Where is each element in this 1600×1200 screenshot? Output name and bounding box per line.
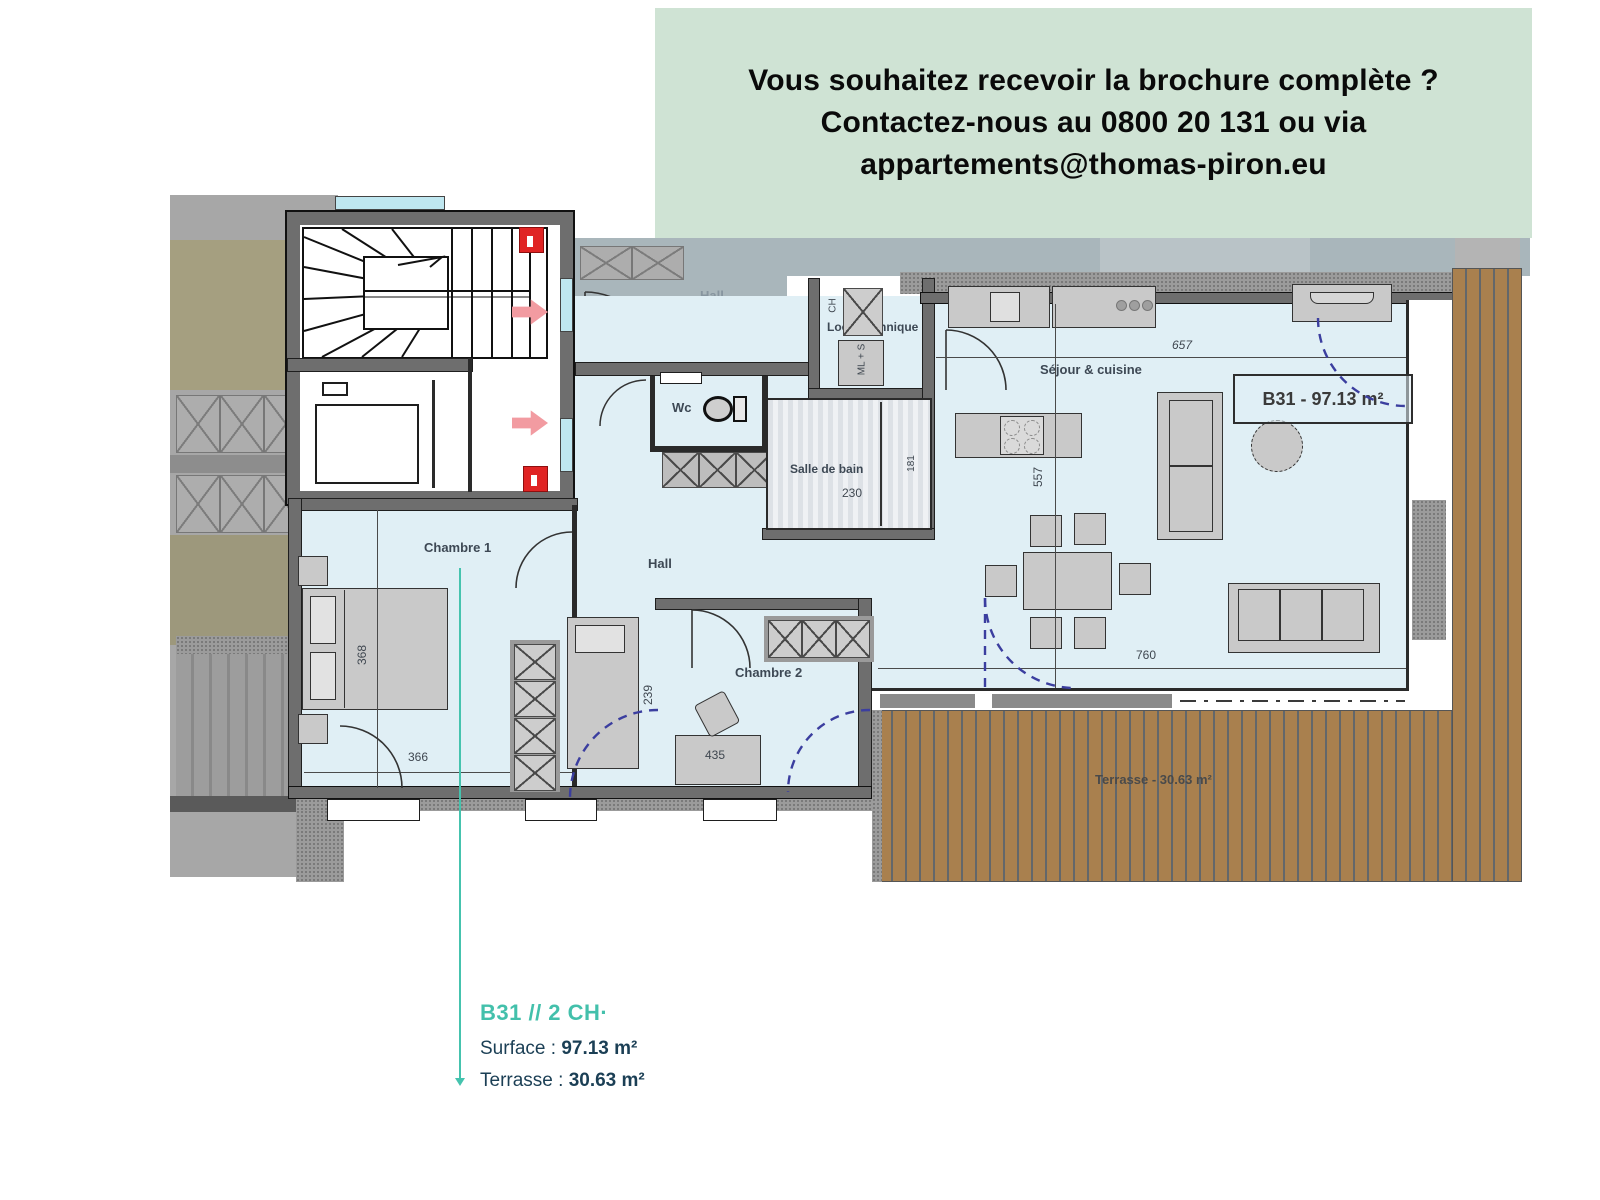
door-arc-chambre2 xyxy=(692,610,750,668)
elevator-door-line xyxy=(432,380,435,488)
elevator-counterweight xyxy=(322,382,348,396)
surface-line: Surface : 97.13 m² xyxy=(480,1038,637,1060)
common-hall-wardrobe xyxy=(580,246,632,280)
banner-line-3: appartements@thomas-piron.eu xyxy=(860,148,1327,182)
terrace-deck xyxy=(878,710,1506,882)
neighbor-olive-block-2 xyxy=(170,535,302,645)
room-label-sdb: Salle de bain xyxy=(790,462,863,476)
nightstand xyxy=(298,714,328,744)
window xyxy=(560,278,573,332)
kitchen-counter xyxy=(1052,286,1156,328)
hob-knob xyxy=(1142,300,1153,311)
door-arc-wc xyxy=(600,380,646,426)
neighbor-terrace-deck xyxy=(176,654,302,796)
chambre1-left-wall xyxy=(288,498,302,790)
dim-label-181: 181 xyxy=(906,455,917,472)
neighbor-wardrobe xyxy=(220,395,264,453)
common-hall-wardrobe xyxy=(632,246,684,280)
hob-burner xyxy=(1024,438,1040,454)
terrace-left-wall xyxy=(872,710,882,882)
bedroom-window xyxy=(327,799,420,821)
surface-label: Surface : xyxy=(480,1038,556,1059)
shower-screen xyxy=(880,402,882,526)
contact-banner: Vous souhaitez recevoir la brochure comp… xyxy=(655,8,1532,238)
neighbor-wardrobe xyxy=(176,395,220,453)
neighbor-terrace-edge xyxy=(176,636,302,654)
stair-elevator-wall xyxy=(287,358,473,372)
dining-chair xyxy=(1030,515,1062,547)
hall-storage xyxy=(699,452,736,488)
sejour-bottom-line xyxy=(872,688,1409,691)
chambre2-top-wall xyxy=(655,598,870,610)
surface-value: 97.13 m² xyxy=(561,1038,637,1059)
dim-label-657: 657 xyxy=(1172,338,1192,352)
coffee-table xyxy=(1251,420,1303,472)
dim-label-368: 368 xyxy=(355,645,369,665)
bed-pillow xyxy=(575,625,625,653)
window-door-arc xyxy=(985,598,1075,688)
terrace-value: 30.63 m² xyxy=(569,1070,645,1091)
hall-storage xyxy=(662,452,699,488)
sofa-cushion xyxy=(1322,589,1364,641)
unit-title: B31 // 2 CH· xyxy=(480,1000,608,1026)
neighbor-wardrobe xyxy=(176,475,220,533)
sofa-cushion xyxy=(1238,589,1280,641)
wardrobe xyxy=(836,620,870,658)
bed-fold-line xyxy=(344,590,345,708)
terrace-line: Terrasse : 30.63 m² xyxy=(480,1070,645,1092)
sejour-bottom-sill xyxy=(880,694,975,708)
banner-line-2: Contactez-nous au 0800 20 131 ou via xyxy=(821,106,1367,140)
wc-left-wall xyxy=(650,376,655,450)
fire-extinguisher-icon xyxy=(519,227,544,253)
dining-chair xyxy=(1074,617,1106,649)
terrace-label: Terrasse : xyxy=(480,1070,563,1091)
leader-line xyxy=(459,568,461,1080)
door-arc-sejour xyxy=(946,330,1006,390)
window xyxy=(335,196,445,210)
bedroom-window xyxy=(703,799,777,821)
wardrobe xyxy=(802,620,836,658)
toilet-icon xyxy=(703,396,733,422)
wardrobe xyxy=(768,620,802,658)
toilet-tank-icon xyxy=(733,396,747,422)
sofa-cushion xyxy=(1280,589,1322,641)
wardrobe xyxy=(514,718,556,754)
sejour-bottom-sill xyxy=(992,694,1172,708)
dim-label-435: 435 xyxy=(705,748,725,762)
elevator-cab xyxy=(315,404,419,484)
elevator-wall xyxy=(468,358,472,492)
dining-chair xyxy=(1074,513,1106,545)
bed-pillow xyxy=(310,652,336,700)
sejour-right-pillar xyxy=(1412,500,1446,640)
kitchen-sink xyxy=(990,292,1020,322)
dim-label-230: 230 xyxy=(842,486,862,500)
door-arc-chambre1-entry xyxy=(340,726,402,788)
boiler-unit xyxy=(843,288,883,336)
dim-label-557: 557 xyxy=(1031,467,1045,487)
chambre1-top-wall xyxy=(288,498,578,511)
window xyxy=(560,418,573,472)
wardrobe xyxy=(514,681,556,717)
nightstand xyxy=(298,556,328,586)
room-label-hall: Hall xyxy=(648,556,672,571)
page: Hall xyxy=(0,0,1600,1200)
dim-label-239: 239 xyxy=(641,685,655,705)
room-label-chambre1: Chambre 1 xyxy=(424,540,491,555)
door-arc-chambre1 xyxy=(516,532,572,588)
wc-window xyxy=(660,372,702,384)
leader-line-arrowhead xyxy=(455,1078,465,1086)
local-left-wall xyxy=(808,278,820,400)
staircase xyxy=(302,227,548,359)
room-label-terrasse: Terrasse - 30.63 m² xyxy=(1095,772,1212,787)
window-door-arc xyxy=(1318,318,1406,406)
window-door-arc xyxy=(788,710,870,792)
appliance-label-ch: CH xyxy=(828,298,839,312)
fire-extinguisher-icon xyxy=(523,466,548,492)
hob-knob xyxy=(1129,300,1140,311)
tv-icon xyxy=(1310,292,1374,304)
bed-pillow xyxy=(310,596,336,644)
room-label-wc: Wc xyxy=(672,400,692,415)
dim-line-760 xyxy=(878,668,1406,669)
hob-knob xyxy=(1116,300,1127,311)
chaise-cushion xyxy=(1169,400,1213,466)
upper-common-block xyxy=(1100,238,1310,272)
hob-burner xyxy=(1004,420,1020,436)
hob-burner xyxy=(1004,438,1020,454)
dining-chair xyxy=(1119,563,1151,595)
upper-common-block xyxy=(1455,238,1520,268)
hob-burner xyxy=(1024,420,1040,436)
wardrobe xyxy=(514,644,556,680)
sejour-bottom-dashline xyxy=(1180,700,1405,702)
window-door-arc xyxy=(570,710,658,798)
bedroom-window xyxy=(525,799,597,821)
chaise-cushion xyxy=(1169,466,1213,532)
banner-line-1: Vous souhaitez recevoir la brochure comp… xyxy=(748,64,1439,98)
dining-chair xyxy=(985,565,1017,597)
neighbor-olive-block xyxy=(170,240,302,390)
dim-label-760: 760 xyxy=(1136,648,1156,662)
neighbor-wardrobe xyxy=(220,475,264,533)
dim-label-366: 366 xyxy=(408,750,428,764)
appliance-label-ml-s: ML + S xyxy=(856,344,867,376)
wardrobe xyxy=(514,755,556,791)
terrace-side-deck xyxy=(1452,268,1522,882)
